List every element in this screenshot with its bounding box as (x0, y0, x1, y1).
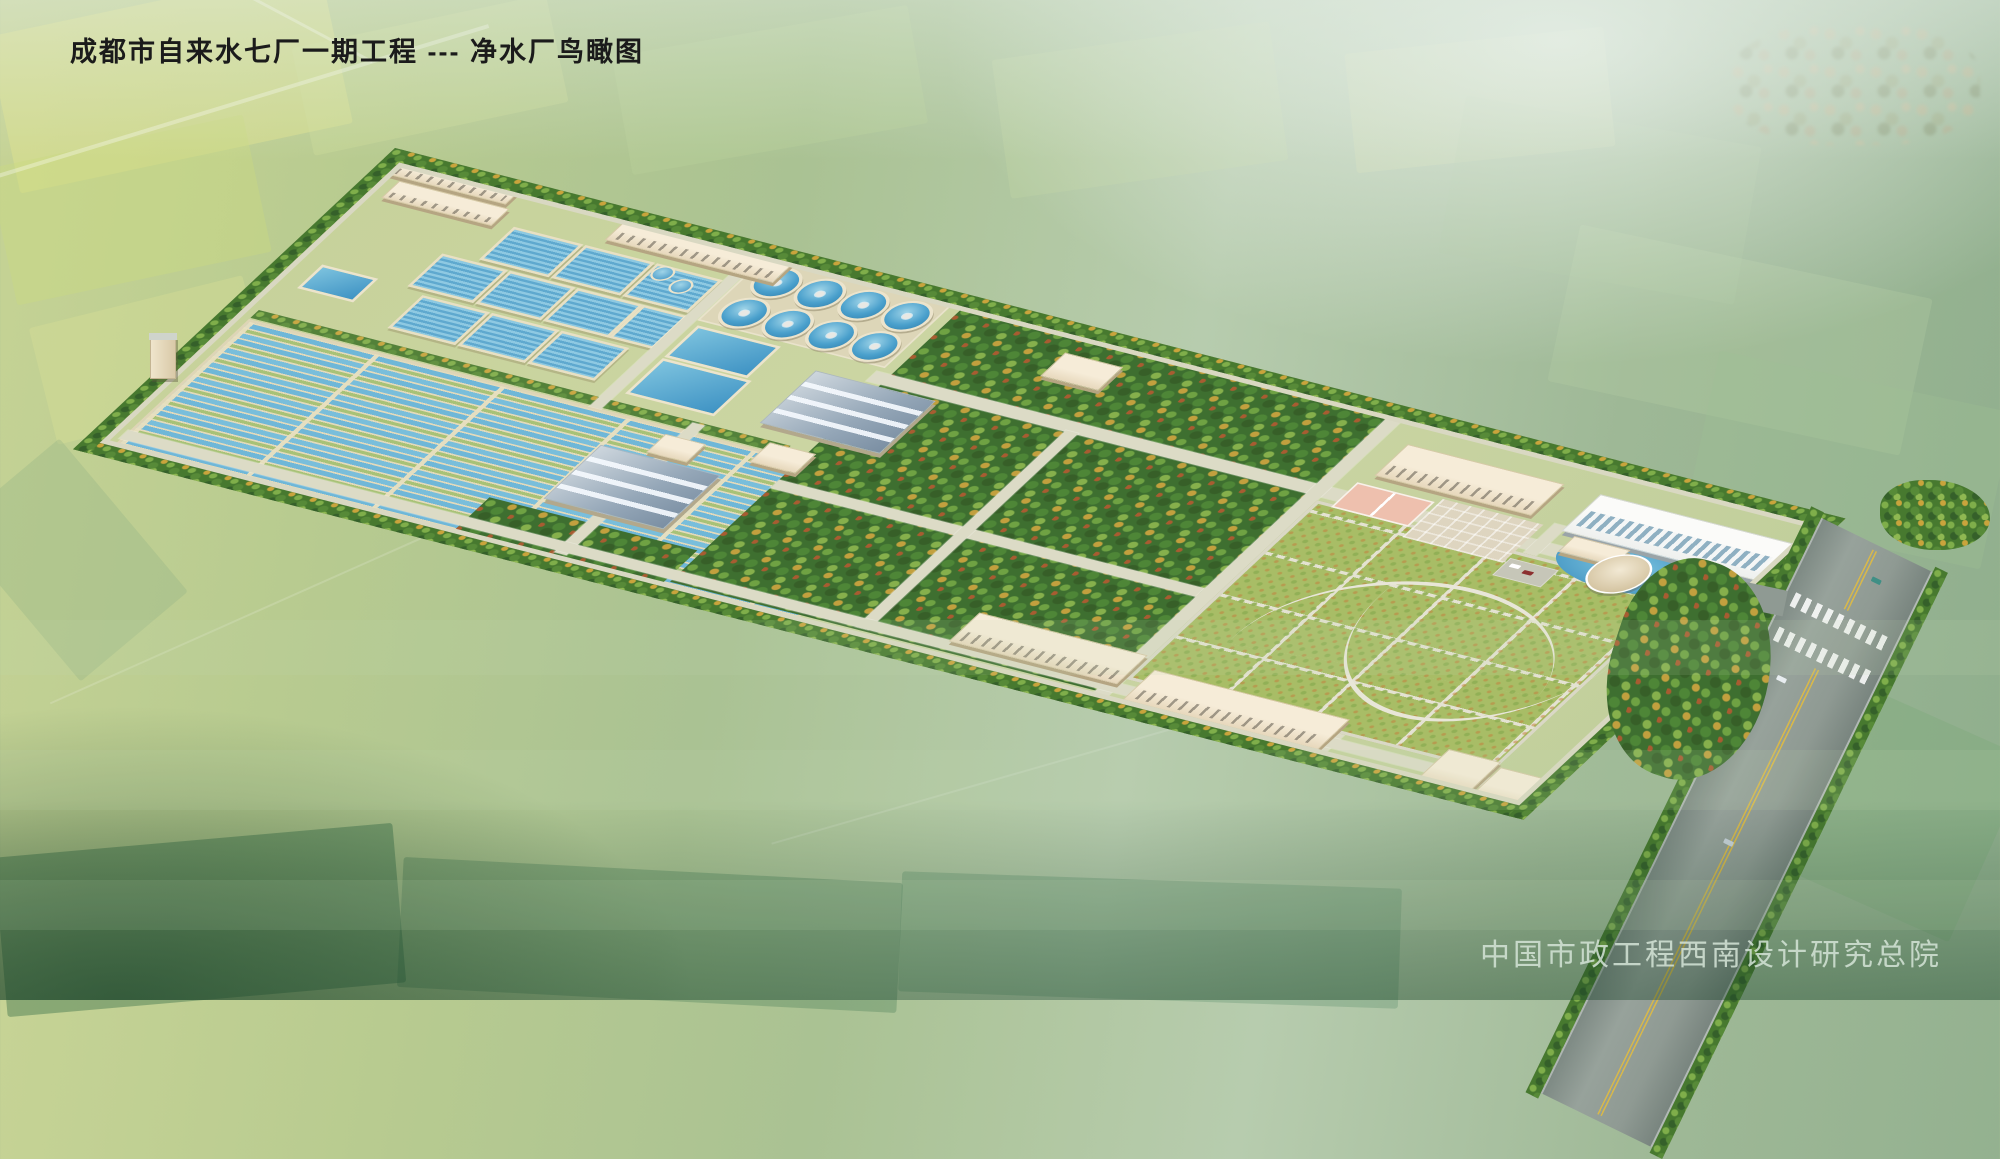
design-institute-credit: 中国市政工程西南设计研究总院 (1480, 930, 1942, 974)
field-patch (291, 0, 568, 156)
car (1871, 576, 1882, 585)
haze-band (0, 750, 2000, 810)
car (1776, 675, 1787, 684)
distant-village (1730, 25, 1980, 145)
haze-band (0, 620, 2000, 675)
rendering-canvas: { "header": { "title": "成都市自来水七厂一期工程 ---… (0, 0, 2000, 1000)
field-patch (612, 5, 928, 175)
haze-band (0, 880, 2000, 930)
field-patch (992, 21, 1289, 199)
water-tower (150, 337, 176, 379)
page-title: 成都市自来水七厂一期工程 --- 净水厂鸟瞰图 (70, 30, 644, 69)
